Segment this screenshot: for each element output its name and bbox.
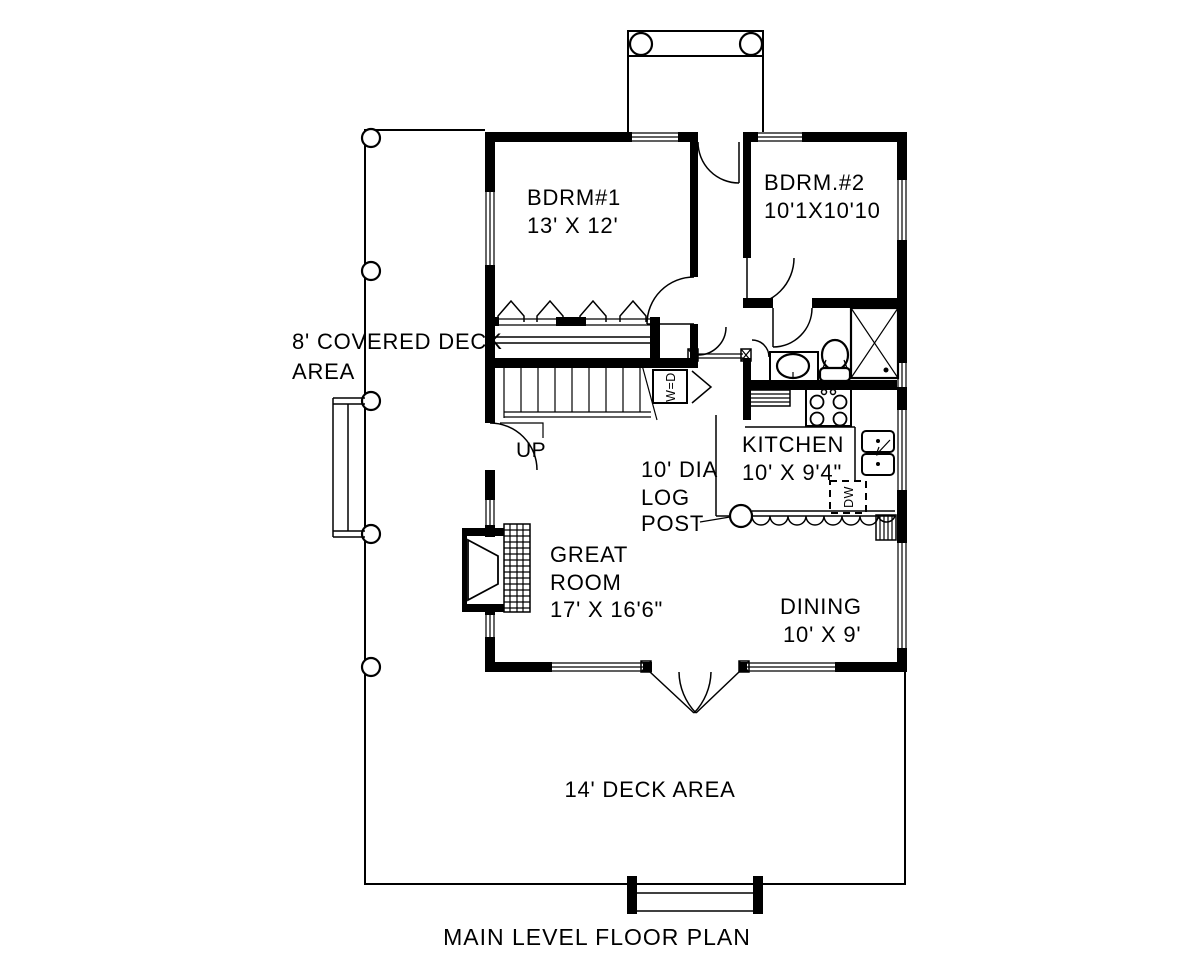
toilet-icon xyxy=(820,340,850,381)
dining-dims-label: 10' X 9' xyxy=(783,622,861,647)
staircase xyxy=(500,365,657,438)
deck-area-label: 14' DECK AREA xyxy=(564,777,735,802)
window-icon xyxy=(552,662,643,672)
great-room-label-1: GREAT xyxy=(550,542,628,567)
stairs-up-label: UP xyxy=(516,439,546,462)
great-room-label-2: ROOM xyxy=(550,570,622,595)
bdrm1-name-label: BDRM#1 xyxy=(527,185,621,210)
hall-door-icon xyxy=(698,327,769,357)
deck-outline xyxy=(362,129,905,884)
washer-dryer-label: W=D xyxy=(664,372,678,402)
log-post-label-1: 10' DIA xyxy=(641,457,718,482)
window-icon xyxy=(758,132,802,142)
porch-post-icon xyxy=(630,33,652,55)
south-deck-steps xyxy=(627,876,763,914)
great-room-dims-label: 17' X 16'6" xyxy=(550,597,663,622)
bdrm2-dims-label: 10'1X10'10 xyxy=(764,198,881,223)
window-icon xyxy=(485,615,495,637)
counter-hatch xyxy=(745,390,790,406)
front-door-icon xyxy=(698,142,739,183)
floor-plan-drawing: W=D xyxy=(0,0,1200,960)
washer-dryer-closet: W=D xyxy=(653,370,711,403)
window-icon xyxy=(897,180,907,240)
window-icon xyxy=(632,132,678,142)
bathroom xyxy=(770,308,898,382)
dishwasher-icon: DW xyxy=(830,481,866,513)
stove-icon xyxy=(806,387,851,426)
log-post-icon xyxy=(730,505,752,527)
floor-plan-page: W=D xyxy=(0,0,1200,960)
deck-post-icon xyxy=(362,525,380,543)
drawing-title: MAIN LEVEL FLOOR PLAN xyxy=(443,924,751,950)
dining-name-label: DINING xyxy=(780,594,862,619)
bathroom-door-icon xyxy=(773,308,812,347)
dishwasher-label: DW xyxy=(842,486,856,508)
covered-deck-label-1: 8' COVERED DECK xyxy=(292,329,503,354)
west-deck-stairs xyxy=(333,398,365,537)
porch-post-icon xyxy=(740,33,762,55)
kitchen-sink-icon xyxy=(862,431,894,475)
bdrm1-dims-label: 13' X 12' xyxy=(527,213,618,238)
deck-post-icon xyxy=(362,129,380,147)
bifold-door-icon xyxy=(692,371,711,403)
bdrm2-door-icon xyxy=(747,258,794,305)
covered-deck-label-2: AREA xyxy=(292,359,355,384)
sliding-door-icon xyxy=(488,337,650,343)
window-icon xyxy=(485,500,495,525)
shower-icon xyxy=(851,308,898,378)
window-icon xyxy=(897,543,907,648)
window-icon xyxy=(485,192,495,265)
kitchen-dims-label: 10' X 9'4" xyxy=(742,460,842,485)
kitchen-name-label: KITCHEN xyxy=(742,432,844,457)
entry-porch xyxy=(628,31,763,132)
bdrm2-name-label: BDRM.#2 xyxy=(764,170,865,195)
window-icon xyxy=(747,662,835,672)
log-post-label-3: POST xyxy=(641,511,704,536)
bdrm1-door-icon xyxy=(647,277,694,324)
log-post-label-2: LOG xyxy=(641,485,690,510)
deck-post-icon xyxy=(362,392,380,410)
labels: BDRM#1 13' X 12' BDRM.#2 10'1X10'10 KITC… xyxy=(292,170,881,950)
french-doors-icon xyxy=(650,672,739,713)
window-icon xyxy=(897,410,907,490)
fireplace-icon xyxy=(462,524,530,612)
vanity-sink-icon xyxy=(770,352,818,382)
log-post-leader-line xyxy=(700,517,730,522)
deck-post-icon xyxy=(362,658,380,676)
deck-post-icon xyxy=(362,262,380,280)
hearth-grid xyxy=(504,524,530,612)
